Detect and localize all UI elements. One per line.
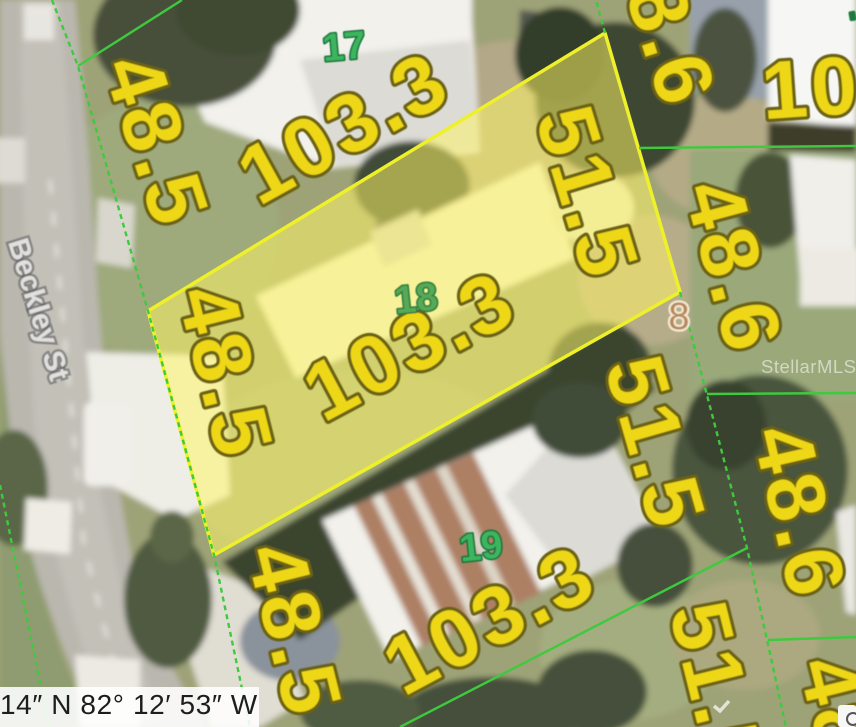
- svg-text:8: 8: [668, 296, 689, 338]
- svg-text:StellarMLS: StellarMLS: [761, 356, 856, 377]
- svg-text:14″ N 82° 12′ 53″ W: 14″ N 82° 12′ 53″ W: [0, 689, 258, 720]
- svg-text:103.3: 103.3: [758, 31, 856, 137]
- svg-text:17: 17: [321, 24, 368, 71]
- svg-text:19: 19: [457, 523, 505, 570]
- svg-text:18: 18: [392, 275, 440, 322]
